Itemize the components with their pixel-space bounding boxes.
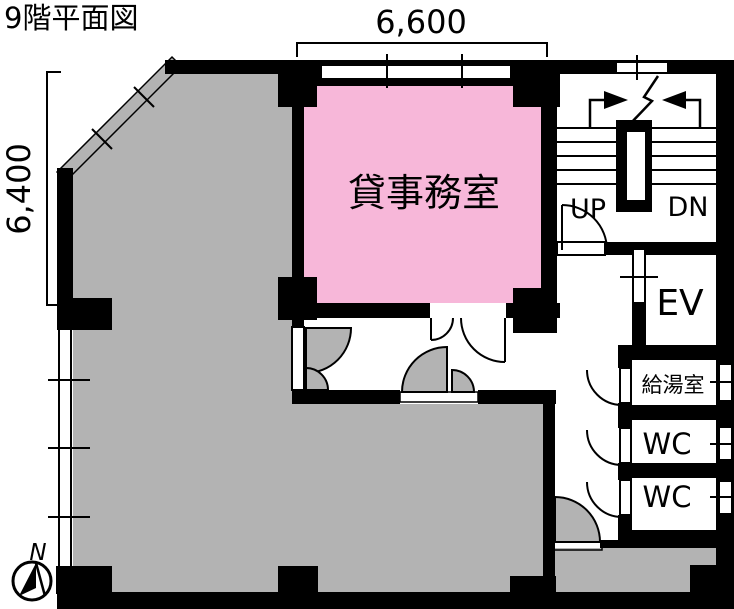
- page-title: 9階平面図: [4, 1, 138, 35]
- wall-stair-south: [605, 242, 734, 255]
- wall-service-corridor-west: [543, 390, 555, 609]
- office-window: [322, 66, 510, 78]
- dimension-top-value: 6,600: [375, 3, 467, 41]
- door-leaf: [620, 480, 631, 515]
- wall-elevator-south: [618, 345, 734, 360]
- wall-wc-south: [618, 530, 734, 548]
- door-leaf: [620, 368, 631, 403]
- wall-office-east: [541, 60, 557, 333]
- door-leaf: [620, 428, 631, 463]
- compass-north-label: N: [29, 540, 46, 566]
- dimension-left-value: 6,400: [0, 143, 38, 235]
- wall-left-upper: [57, 168, 73, 300]
- wall-wc-divider: [618, 463, 734, 478]
- pillar: [278, 566, 318, 594]
- office-door-opening: [430, 303, 506, 318]
- wall-bottom: [57, 592, 734, 609]
- wall-office-south-left: [292, 303, 430, 318]
- west-door-opening: [292, 327, 304, 390]
- wc-lower-label: WC: [643, 480, 692, 514]
- stair-core-void: [627, 132, 645, 200]
- pillar: [690, 565, 734, 594]
- stair-window: [616, 62, 668, 73]
- pillar: [57, 298, 112, 330]
- pillar: [56, 566, 112, 594]
- stair-down-label: DN: [668, 192, 709, 223]
- wall-right: [716, 60, 734, 609]
- floor-plan-canvas: UP DN 貸事務室 EV 給湯室 WC WC 9階平面図 6,600 6,40…: [0, 0, 734, 609]
- kitchenette-label: 給湯室: [642, 373, 705, 397]
- floor-plan-page: UP DN 貸事務室 EV 給湯室 WC WC 9階平面図 6,600 6,40…: [0, 0, 734, 609]
- wc-upper-label: WC: [643, 427, 692, 461]
- wall-office-west: [292, 60, 304, 320]
- elevator-label: EV: [656, 283, 704, 324]
- stair-door-opening: [557, 242, 605, 255]
- office-room-label: 貸事務室: [348, 171, 500, 215]
- stair-up-label: UP: [570, 194, 606, 225]
- wall-kitchenette-south: [618, 405, 734, 420]
